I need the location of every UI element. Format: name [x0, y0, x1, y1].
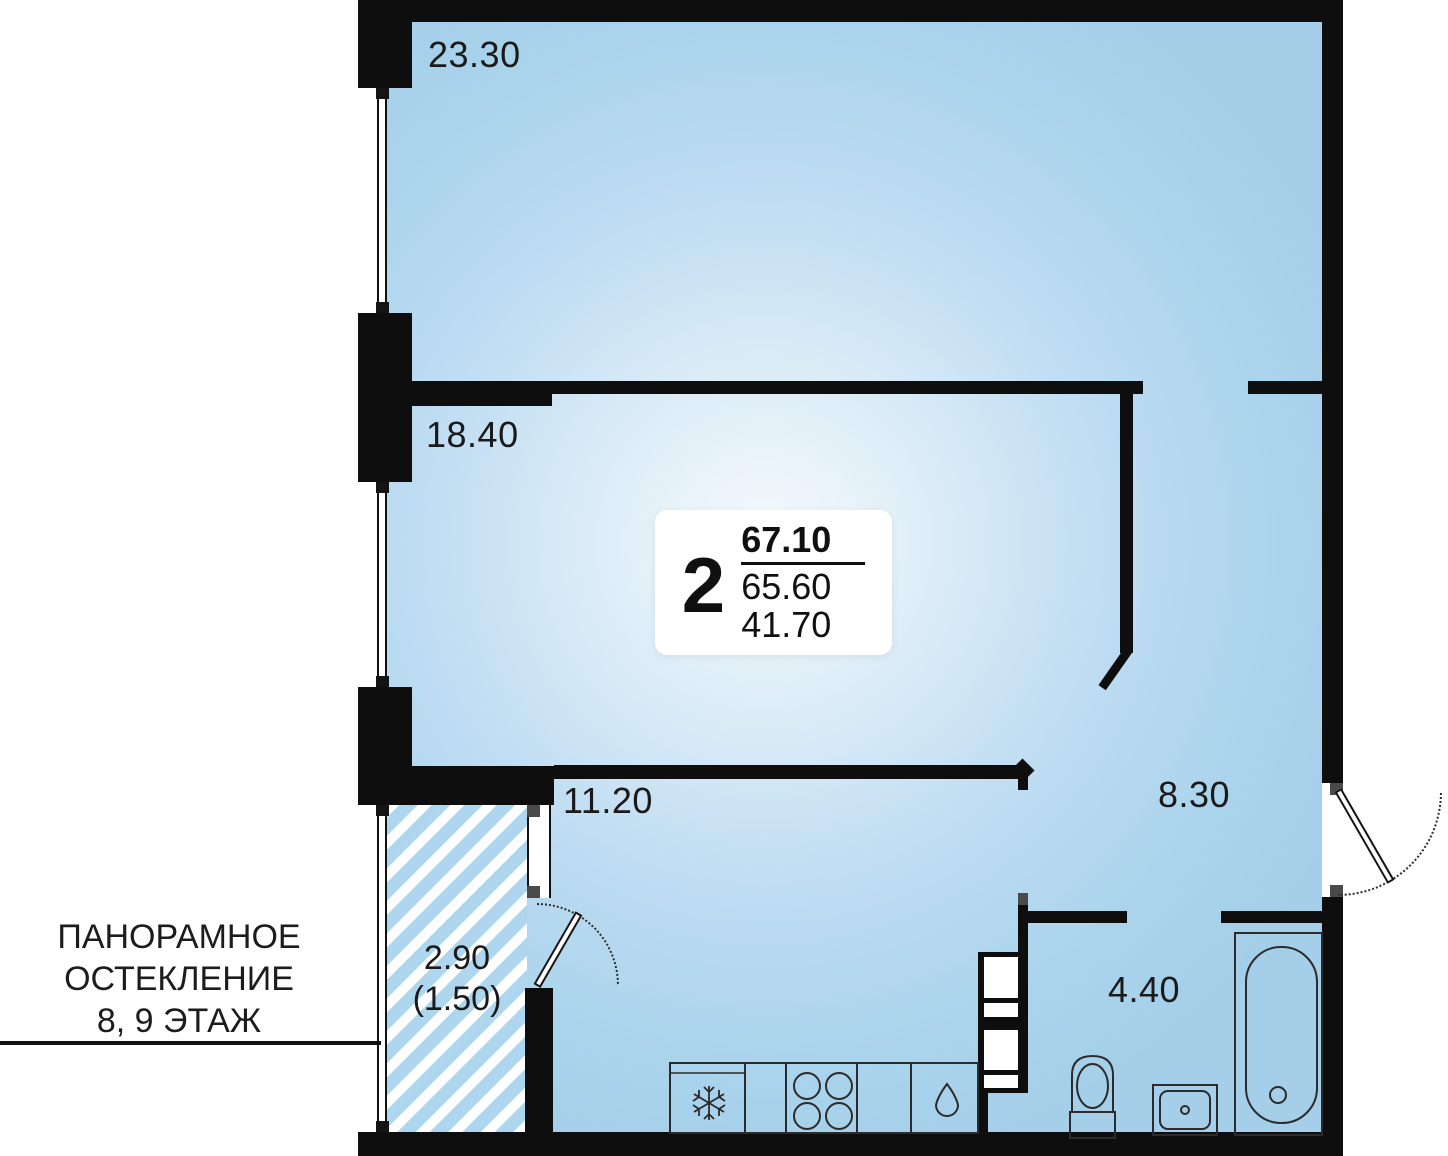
window-jamb — [376, 805, 389, 816]
wall-right-upper — [1322, 0, 1343, 783]
wall-kitchen-top-thick — [412, 766, 554, 805]
wall-below-shaft — [978, 1093, 988, 1132]
window-room-middle — [377, 482, 387, 687]
wall-left-pillar-3 — [358, 687, 412, 805]
window-jamb — [376, 302, 389, 313]
annotation-leader-line — [0, 1041, 381, 1045]
wall-left-pillar-2 — [358, 313, 412, 482]
wall-room-hall-divider — [1120, 393, 1133, 653]
area-values: 67.10 65.60 41.70 — [741, 521, 865, 644]
door-jamb — [527, 886, 540, 898]
wall-left-pillar-1 — [358, 0, 412, 88]
room-area-label-bathroom: 4.40 — [1108, 969, 1180, 1011]
room-area-label-middle: 18.40 — [426, 414, 519, 456]
wall-hall-top-segment — [1248, 381, 1322, 394]
shaft-duct-3 — [984, 1030, 1018, 1070]
room-area-label-balcony: 2.90 (1.50) — [387, 938, 527, 1020]
window-room-top — [377, 88, 387, 313]
window-balcony-glazing — [377, 805, 387, 1132]
wall-bathroom-left — [1028, 911, 1127, 923]
balcony-area-reduced-value: (1.50) — [387, 979, 527, 1020]
wall-top — [358, 0, 1343, 22]
balcony-area-value: 2.90 — [387, 938, 527, 979]
wall-kitchen-top — [554, 765, 1026, 779]
floor-plan: 23.30 18.40 11.20 8.30 4.40 2.90 (1.50) … — [0, 0, 1448, 1156]
note-line-3: 8, 9 ЭТАЖ — [14, 1000, 344, 1042]
wall-right-lower — [1322, 897, 1343, 1156]
room-area-label-kitchen: 11.20 — [563, 780, 653, 822]
room-area-label-hallway: 8.30 — [1158, 774, 1230, 816]
wall-rooms-divider — [552, 381, 1143, 394]
shaft-duct-2 — [984, 1003, 1018, 1017]
panoramic-glazing-note: ПАНОРАМНОЕ ОСТЕКЛЕНИЕ 8, 9 ЭТАЖ — [14, 916, 344, 1042]
wall-bathroom-right — [1221, 911, 1322, 923]
window-jamb — [376, 1121, 389, 1132]
door-jamb — [527, 805, 540, 817]
door-jamb — [1018, 893, 1028, 905]
wall-bottom — [358, 1132, 1343, 1156]
room-area-label-top: 23.30 — [428, 34, 521, 76]
rooms-count: 2 — [682, 546, 725, 624]
wall-balcony-block — [525, 988, 553, 1132]
window-jamb — [376, 88, 389, 99]
shaft-duct-1 — [984, 957, 1018, 998]
window-balcony-interior — [527, 805, 551, 898]
shaft-duct-4 — [984, 1075, 1018, 1088]
living-area-value: 41.70 — [741, 606, 831, 644]
total-area-value: 67.10 — [741, 521, 865, 565]
window-jamb — [376, 482, 389, 493]
wall-rooms-divider-thick — [412, 381, 552, 406]
note-line-1: ПАНОРАМНОЕ — [14, 916, 344, 958]
apartment-info-card: 2 67.10 65.60 41.70 — [655, 510, 892, 655]
note-line-2: ОСТЕКЛЕНИЕ — [14, 958, 344, 1000]
window-jamb — [376, 676, 389, 687]
wall-kitchen-stub — [1018, 771, 1028, 790]
area-without-balcony-value: 65.60 — [741, 568, 831, 606]
